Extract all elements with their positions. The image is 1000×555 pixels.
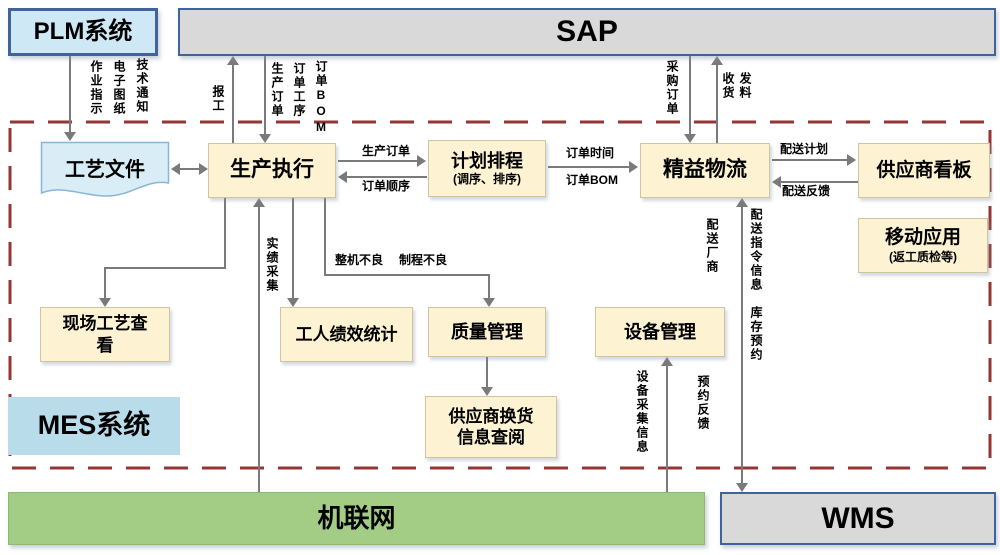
connector-line	[781, 181, 858, 183]
label-tech-notice: 技术通知	[136, 58, 148, 114]
connector-line	[69, 56, 71, 133]
connector-arrowhead	[661, 357, 673, 366]
label-order-process: 订单工序	[293, 62, 305, 118]
onsite-process-view-label: 现场工艺查看	[55, 313, 155, 356]
onsite-process-view-box: 现场工艺查看	[40, 307, 170, 362]
sap-system-box: SAP	[178, 8, 996, 56]
mobile-app-title: 移动应用	[885, 226, 961, 250]
worker-performance-label: 工人绩效统计	[296, 324, 398, 345]
quality-management-box: 质量管理	[428, 307, 546, 357]
production-execution-box: 生产执行	[208, 143, 336, 198]
connector-line	[324, 198, 326, 276]
plm-system-label: PLM系统	[34, 17, 133, 47]
label-equipment-data-collection: 设备采集信息	[636, 370, 648, 454]
production-execution-label: 生产执行	[230, 157, 314, 183]
label-delivery-vendor: 配送厂商	[706, 218, 718, 274]
label-work-instruction: 作业指示	[90, 60, 102, 116]
connector-arrowhead	[711, 56, 723, 65]
connector-arrowhead	[64, 132, 76, 141]
planning-scheduling-title: 计划排程	[451, 150, 523, 173]
supplier-kanban-box: 供应商看板	[858, 143, 990, 198]
mobile-app-subtitle: (返工质检等)	[889, 250, 957, 265]
connector-arrowhead	[684, 134, 696, 143]
connector-arrowhead	[253, 198, 265, 207]
quality-management-label: 质量管理	[451, 321, 523, 344]
label-goods-receipt: 收货	[722, 72, 734, 100]
mobile-app-box: 移动应用 (返工质检等)	[858, 218, 988, 273]
label-order-time: 订单时间	[566, 147, 614, 160]
connector-line	[486, 357, 488, 387]
connector-line	[264, 56, 266, 134]
mes-architecture-diagram: 作业指示 电子图纸 技术通知 报工 生产订单 订单工序 订单BOM 生产订单 订…	[0, 0, 1000, 555]
connector-line	[232, 65, 234, 143]
connector-arrowhead	[629, 161, 638, 173]
label-order-bom: 订单BOM	[566, 174, 618, 187]
machine-network-label: 机联网	[317, 502, 395, 535]
label-delivery-feedback: 配送反馈	[782, 185, 830, 198]
connector-line	[689, 56, 691, 134]
connector-line	[104, 267, 226, 269]
label-production-order: 生产订单	[362, 145, 410, 158]
label-order-sequence: 订单顺序	[362, 180, 410, 193]
process-file-label: 工艺文件	[40, 153, 170, 182]
connector-arrowhead	[417, 155, 426, 167]
planning-scheduling-subtitle: (调序、排序)	[453, 172, 521, 187]
connector-arrowhead	[736, 483, 748, 492]
plm-system-box: PLM系统	[8, 8, 158, 56]
wms-system-box: WMS	[720, 492, 996, 545]
equipment-management-box: 设备管理	[595, 307, 725, 357]
connector-line	[347, 176, 427, 178]
label-delivery-instruction-info: 配送指令信息	[750, 208, 762, 292]
label-e-drawing: 电子图纸	[113, 60, 125, 116]
connector-line	[292, 198, 294, 298]
connector-arrowhead	[772, 176, 781, 188]
connector-arrowhead	[227, 56, 239, 65]
machine-network-bar: 机联网	[8, 492, 705, 545]
connector-line	[179, 168, 200, 170]
supplier-exchange-info-box: 供应商换货信息查阅	[425, 396, 557, 458]
connector-arrowhead	[287, 298, 299, 307]
planning-scheduling-box: 计划排程 (调序、排序)	[428, 140, 546, 197]
label-actual-collection: 实绩采集	[266, 237, 278, 293]
label-reservation-feedback: 预约反馈	[697, 375, 709, 431]
wms-system-label: WMS	[821, 500, 894, 538]
label-inventory-reservation: 库存预约	[750, 306, 762, 362]
label-material-issue: 发料	[739, 72, 751, 100]
connector-line	[548, 166, 630, 168]
connector-line	[324, 274, 490, 276]
supplier-kanban-label: 供应商看板	[876, 159, 971, 183]
supplier-exchange-info-label: 供应商换货信息查阅	[446, 406, 536, 449]
connector-arrowhead	[736, 198, 748, 207]
mes-region-text: MES系统	[38, 409, 151, 443]
connector-line	[224, 198, 226, 269]
connector-arrowhead	[199, 163, 208, 175]
connector-line	[104, 267, 106, 298]
lean-logistics-box: 精益物流	[640, 143, 770, 198]
mes-boundary-dashed	[0, 0, 1000, 555]
label-work-report: 报工	[212, 85, 224, 113]
label-machine-defect: 整机不良	[335, 254, 383, 267]
connector-line	[258, 207, 260, 492]
connector-arrowhead	[481, 387, 493, 396]
connector-line	[772, 159, 847, 161]
connector-arrowhead	[99, 298, 111, 307]
connector-arrowhead	[847, 154, 856, 166]
connector-line	[741, 207, 743, 483]
equipment-management-label: 设备管理	[624, 321, 696, 344]
connector-line	[666, 366, 668, 492]
connector-arrowhead	[259, 134, 271, 143]
connector-arrowhead	[483, 298, 495, 307]
label-delivery-plan: 配送计划	[780, 143, 828, 156]
connector-line	[716, 65, 718, 143]
sap-system-label: SAP	[556, 13, 618, 51]
label-purchase-order: 采购订单	[666, 60, 678, 116]
connector-arrowhead	[338, 171, 347, 183]
lean-logistics-label: 精益物流	[663, 157, 747, 183]
process-file-shape: 工艺文件	[40, 141, 170, 203]
connector-line	[338, 160, 418, 162]
worker-performance-box: 工人绩效统计	[280, 307, 413, 362]
label-production-order-down: 生产订单	[271, 62, 283, 118]
connector-line	[488, 274, 490, 298]
connector-arrowhead	[171, 163, 180, 175]
label-order-bom-down: 订单BOM	[315, 60, 327, 136]
label-process-defect: 制程不良	[399, 254, 447, 267]
mes-region-label: MES系统	[8, 397, 180, 455]
